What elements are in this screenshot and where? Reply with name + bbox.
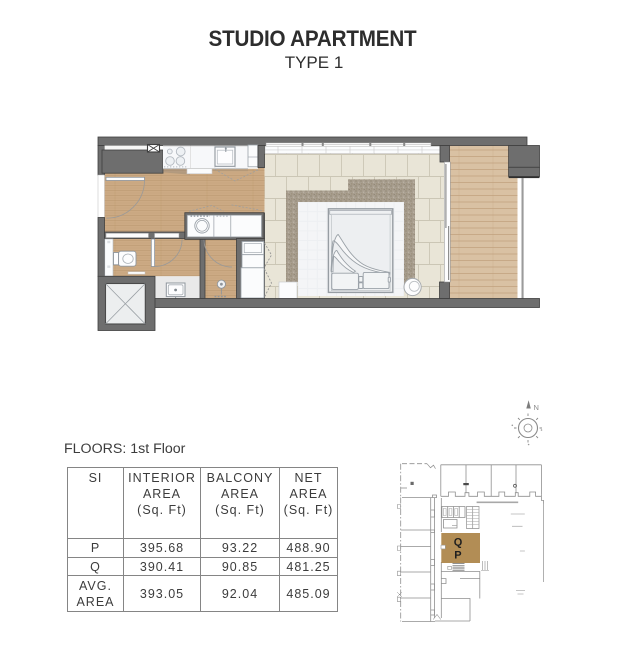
svg-text:P: P (454, 550, 461, 562)
svg-text:Q: Q (454, 536, 463, 548)
svg-text:N: N (534, 403, 539, 412)
